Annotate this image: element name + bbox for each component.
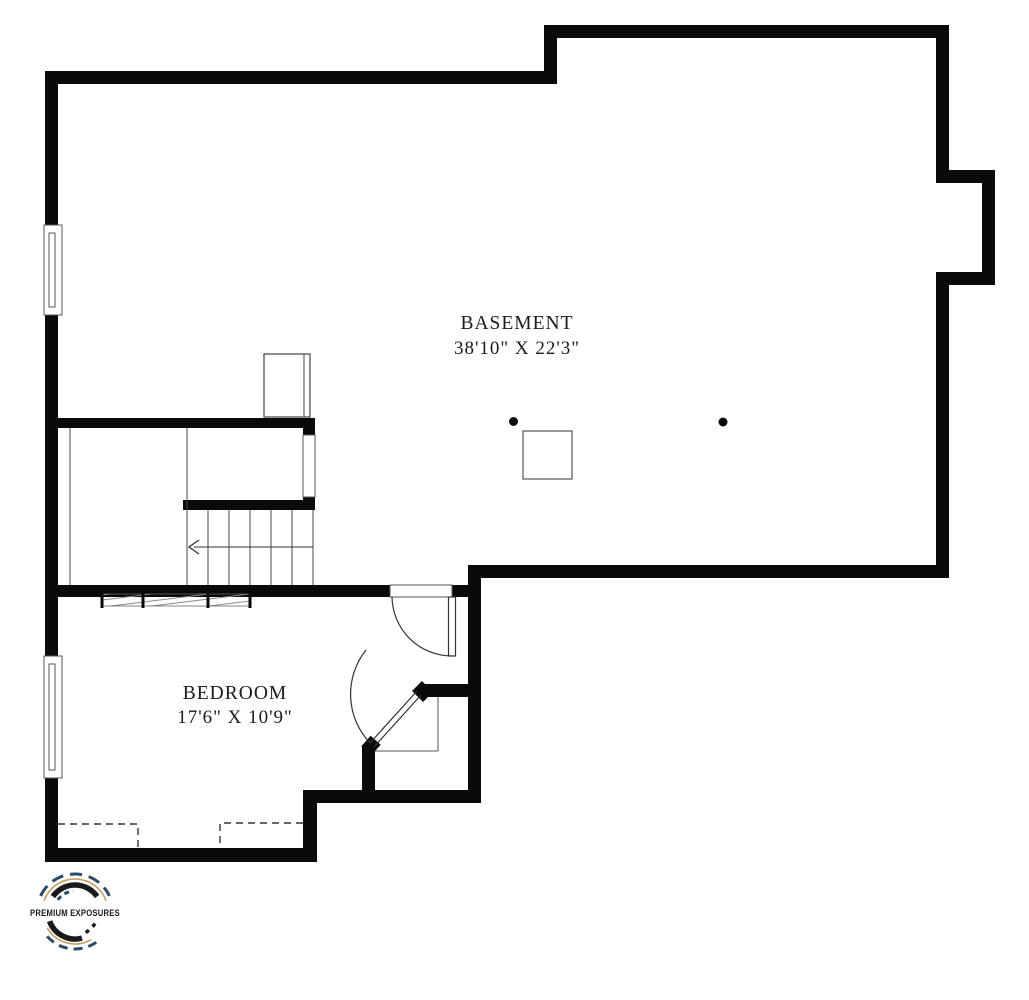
room-name: BEDROOM: [183, 683, 288, 704]
support-pad: [523, 431, 572, 479]
heater-section: [143, 594, 208, 606]
wall-segment-closet-bottom: [303, 790, 481, 803]
closet-angled-door: [351, 650, 421, 747]
wall-segment-bedroom-bottom: [45, 848, 317, 862]
dashed-closet-left: [58, 824, 138, 848]
support-column-dot: [719, 418, 728, 427]
logo-arc-ink-top: [53, 885, 97, 896]
wall-segment-basement-bottom: [468, 565, 949, 578]
support-column-dot: [509, 417, 518, 426]
window-glass-line: [49, 664, 55, 770]
wall-segment-left-mid: [45, 315, 58, 656]
heater-section: [102, 594, 143, 606]
wall-segment-left-top: [45, 71, 58, 225]
heater-section: [208, 594, 250, 606]
wall-segment-doorway-upper: [303, 418, 315, 435]
room-dimensions: 17'6" X 10'9": [177, 707, 293, 728]
room-dimensions: 38'10" X 22'3": [454, 338, 580, 359]
door-opening-frame: [390, 585, 452, 597]
wall-segment-bedroom-top-stub: [452, 585, 468, 597]
premium-exposures-logo: PREMIUM EXPOSURES: [27, 874, 124, 949]
closet-inset-lines: [375, 697, 438, 751]
wall-segment-top-left: [45, 71, 557, 84]
room-name: BASEMENT: [460, 313, 573, 334]
wall-segment-top-right: [544, 25, 949, 38]
wall-segment-notch-right: [982, 170, 995, 285]
floor-plan-page: BASEMENT 38'10" X 22'3" BEDROOM 17'6" X …: [0, 0, 1029, 1000]
room-label-bedroom: BEDROOM 17'6" X 10'9": [177, 683, 293, 728]
door-swing-arc: [351, 650, 370, 743]
wall-segment-right-lower: [936, 272, 949, 578]
window-lower-left: [44, 656, 62, 778]
dashed-closet-right: [220, 823, 303, 848]
dashed-closets: [58, 823, 303, 848]
floor-plan-drawing: BASEMENT 38'10" X 22'3" BEDROOM 17'6" X …: [0, 0, 1029, 1000]
logo-text: PREMIUM EXPOSURES: [30, 908, 120, 919]
window-upper-left: [44, 225, 62, 315]
furnace-box: [264, 354, 310, 417]
wall-segment-closet-left: [362, 745, 375, 803]
wall-segment-utility: [45, 418, 315, 428]
door-leaf-line: [370, 691, 417, 743]
door-leaf-line: [374, 695, 421, 747]
wall-jamb-upper: [417, 686, 428, 697]
door-swing-arc: [392, 597, 452, 656]
utility-fixtures: [264, 354, 728, 497]
wall-segment-stairs-top: [183, 500, 315, 510]
door-leaf: [449, 597, 456, 656]
interior-doorway-opening: [303, 435, 315, 497]
wall-segment-right-upper: [936, 25, 949, 183]
window-glass-line: [49, 233, 55, 307]
room-label-basement: BASEMENT 38'10" X 22'3": [454, 313, 580, 359]
bedroom-entry-door: [390, 585, 456, 656]
logo-arc-ink-bottom-right: [81, 924, 95, 935]
